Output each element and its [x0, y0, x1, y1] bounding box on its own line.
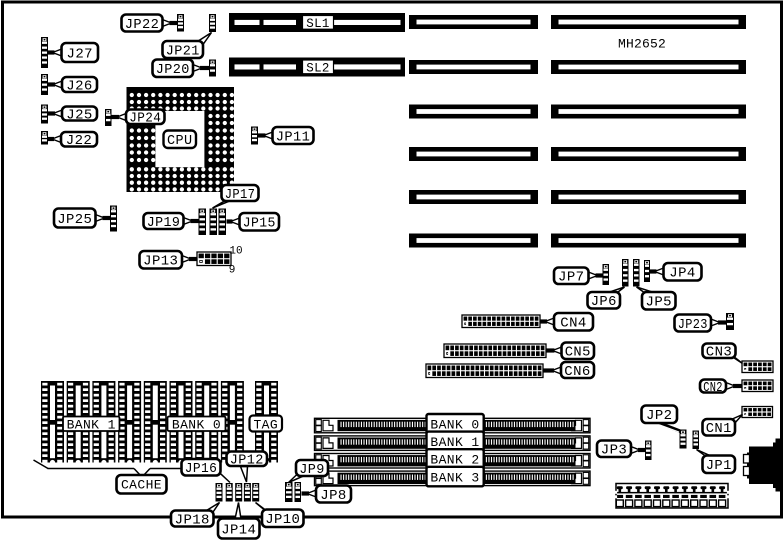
svg-text:JP11: JP11: [276, 129, 311, 145]
svg-text:BANK 1: BANK 1: [430, 435, 479, 450]
svg-text:JP15: JP15: [243, 216, 276, 232]
svg-text:JP7: JP7: [558, 270, 584, 286]
svg-text:CN2: CN2: [703, 380, 723, 396]
svg-text:JP13: JP13: [143, 254, 178, 270]
svg-text:JP1: JP1: [706, 458, 732, 474]
svg-text:BANK 2: BANK 2: [430, 453, 479, 468]
svg-text:JP4: JP4: [669, 266, 695, 282]
svg-text:TAG: TAG: [253, 417, 278, 432]
svg-text:JP16: JP16: [185, 461, 218, 477]
svg-text:BANK 1: BANK 1: [67, 417, 116, 432]
svg-text:JP2: JP2: [646, 408, 672, 424]
svg-text:JP19: JP19: [147, 215, 181, 231]
svg-text:JP6: JP6: [591, 294, 617, 310]
svg-text:JP14: JP14: [221, 522, 256, 538]
svg-text:JP10: JP10: [265, 512, 300, 528]
svg-text:JP20: JP20: [156, 62, 190, 78]
svg-text:SL1: SL1: [306, 17, 329, 31]
svg-text:JP22: JP22: [125, 17, 160, 33]
svg-text:BANK 0: BANK 0: [430, 418, 479, 433]
svg-text:CPU: CPU: [167, 134, 193, 149]
svg-text:J25: J25: [66, 107, 92, 123]
svg-text:JP17: JP17: [225, 187, 256, 203]
svg-text:J22: J22: [66, 133, 92, 149]
svg-text:JP24: JP24: [129, 111, 161, 127]
svg-text:CN5: CN5: [565, 345, 591, 361]
svg-text:CN3: CN3: [706, 345, 732, 361]
svg-text:CACHE: CACHE: [121, 478, 162, 493]
svg-text:JP5: JP5: [646, 295, 672, 311]
svg-text:MH2652: MH2652: [618, 37, 666, 52]
svg-text:JP9: JP9: [299, 462, 325, 478]
svg-text:10: 10: [229, 246, 242, 258]
svg-text:JP23: JP23: [678, 317, 708, 333]
svg-text:CN1: CN1: [706, 421, 732, 437]
svg-text:SL2: SL2: [306, 62, 329, 76]
svg-text:BANK 0: BANK 0: [172, 417, 221, 432]
svg-text:JP25: JP25: [57, 212, 92, 228]
svg-text:9: 9: [229, 265, 236, 277]
svg-text:CN4: CN4: [560, 316, 586, 332]
svg-text:J27: J27: [67, 46, 93, 62]
svg-text:CN6: CN6: [564, 364, 590, 380]
svg-text:JP18: JP18: [175, 512, 210, 528]
svg-text:BANK 3: BANK 3: [430, 470, 479, 485]
svg-text:JP8: JP8: [320, 488, 346, 504]
svg-text:JP3: JP3: [601, 443, 627, 459]
svg-text:JP21: JP21: [166, 43, 200, 59]
svg-text:J26: J26: [66, 78, 92, 94]
svg-text:JP12: JP12: [230, 453, 264, 469]
